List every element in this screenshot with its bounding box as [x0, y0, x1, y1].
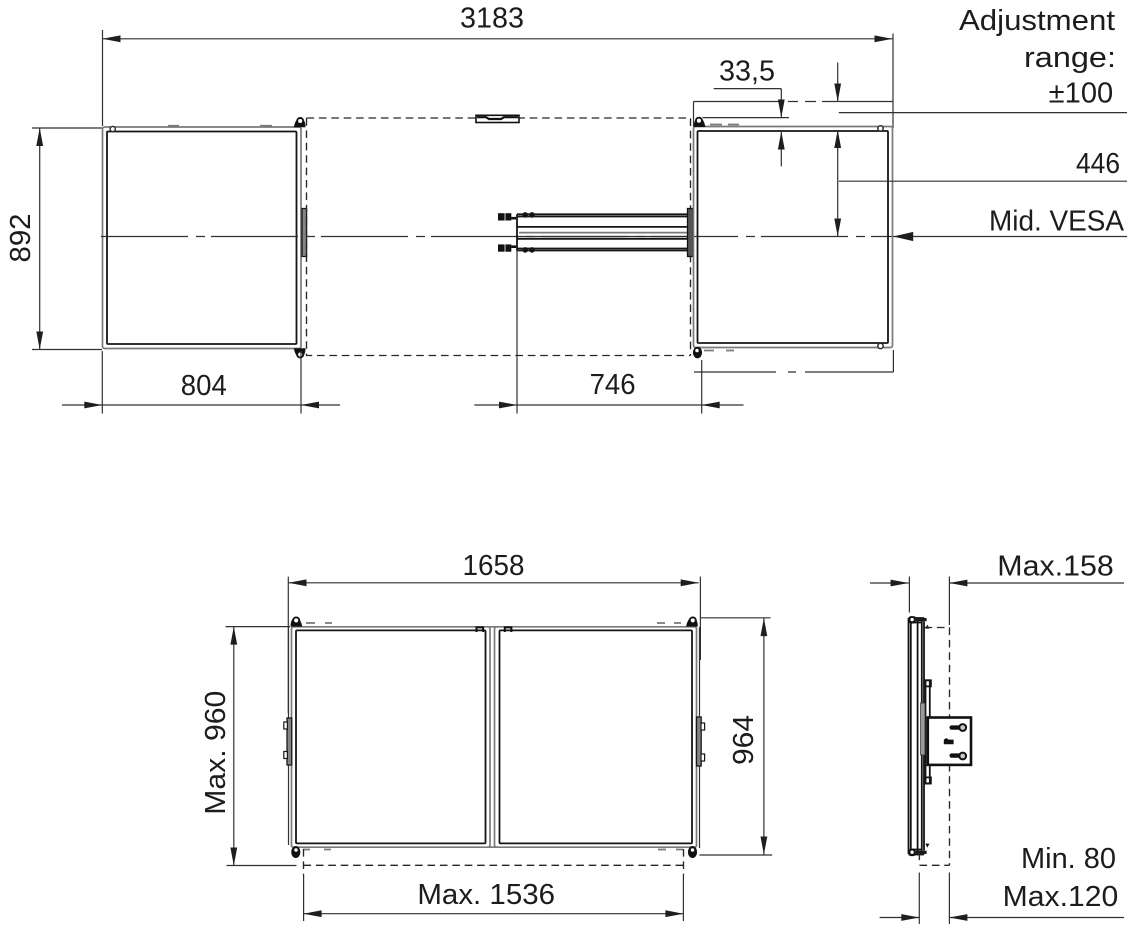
svg-text:3183: 3183 [460, 3, 524, 35]
svg-text:Max.158: Max.158 [997, 550, 1113, 582]
svg-text:Max.120: Max.120 [1003, 881, 1119, 913]
svg-text:Min. 80: Min. 80 [1021, 843, 1116, 875]
svg-text:964: 964 [728, 715, 760, 765]
svg-text:±100: ±100 [1049, 77, 1114, 109]
svg-text:33,5: 33,5 [719, 56, 775, 88]
svg-text:446: 446 [1076, 148, 1120, 180]
svg-text:1658: 1658 [463, 550, 525, 582]
svg-text:746: 746 [590, 369, 636, 401]
svg-text:range:: range: [1024, 42, 1116, 74]
svg-text:Max. 960: Max. 960 [200, 691, 232, 815]
svg-text:Mid. VESA: Mid. VESA [989, 206, 1125, 238]
svg-text:Adjustment: Adjustment [959, 5, 1115, 37]
svg-text:892: 892 [5, 214, 37, 263]
svg-text:Max. 1536: Max. 1536 [417, 879, 555, 911]
svg-text:804: 804 [181, 370, 227, 402]
